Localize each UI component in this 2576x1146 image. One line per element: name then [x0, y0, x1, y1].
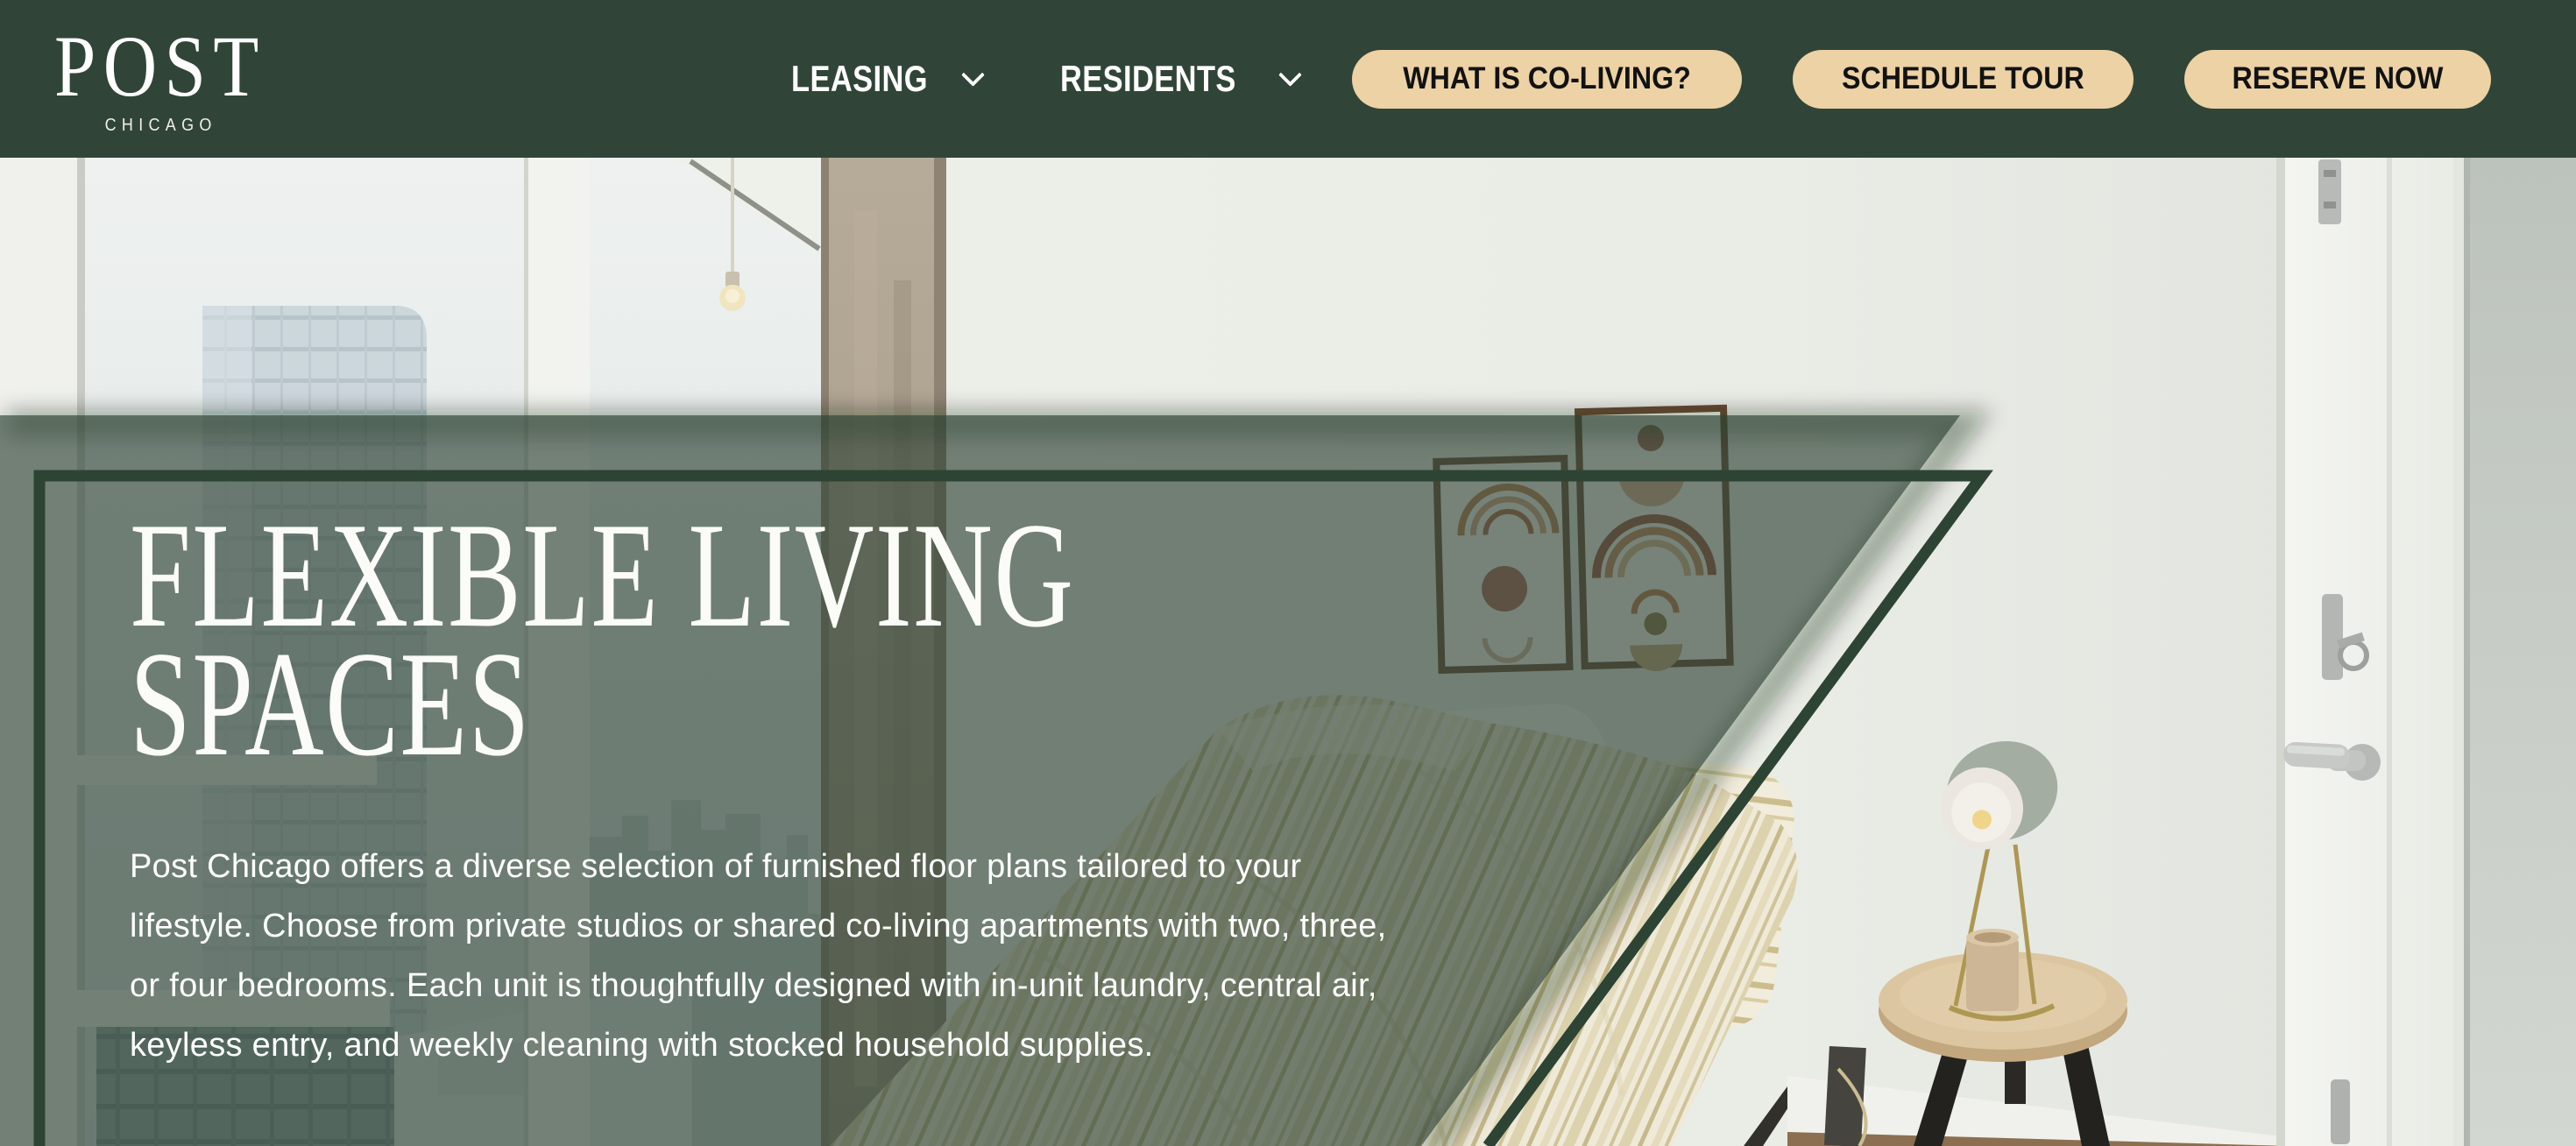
hero-content: FLEXIBLE LIVING SPACES Post Chicago offe… — [0, 158, 2576, 1146]
nav-link-label: RESIDENTS — [1060, 58, 1236, 100]
button-label: RESERVE NOW — [2233, 61, 2444, 96]
top-navbar: POST CHICAGO LEASING RESIDENTS WHAT IS C… — [0, 0, 2576, 158]
button-label: WHAT IS CO-LIVING? — [1404, 61, 1692, 96]
hero-paragraph: Post Chicago offers a diverse selection … — [130, 837, 1532, 1075]
nav-link-residents[interactable]: RESIDENTS — [1060, 58, 1299, 100]
what-is-co-living-button[interactable]: WHAT IS CO-LIVING? — [1352, 50, 1742, 109]
hero-paragraph-line: or four bedrooms. Each unit is thoughtfu… — [130, 956, 1532, 1015]
hero-section: FLEXIBLE LIVING SPACES Post Chicago offe… — [0, 158, 2576, 1146]
brand-name: POST — [54, 23, 266, 110]
nav-links: LEASING RESIDENTS — [791, 58, 1299, 100]
reserve-now-button[interactable]: RESERVE NOW — [2184, 50, 2491, 109]
schedule-tour-button[interactable]: SCHEDULE TOUR — [1793, 50, 2134, 109]
hero-paragraph-line: lifestyle. Choose from private studios o… — [130, 896, 1532, 956]
nav-buttons: WHAT IS CO-LIVING? SCHEDULE TOUR RESERVE… — [1352, 50, 2491, 109]
button-label: SCHEDULE TOUR — [1842, 61, 2084, 96]
brand-city: CHICAGO — [54, 116, 279, 136]
chevron-down-icon — [1278, 63, 1302, 87]
nav-link-label: LEASING — [791, 58, 928, 100]
hero-paragraph-line: keyless entry, and weekly cleaning with … — [130, 1015, 1532, 1075]
nav-link-leasing[interactable]: LEASING — [791, 58, 981, 100]
brand-logo[interactable]: POST CHICAGO — [54, 23, 304, 136]
chevron-down-icon — [961, 63, 985, 87]
hero-heading-line: SPACES — [130, 640, 1074, 769]
hero-paragraph-line: Post Chicago offers a diverse selection … — [130, 837, 1532, 896]
hero-heading: FLEXIBLE LIVING SPACES — [130, 512, 1074, 769]
